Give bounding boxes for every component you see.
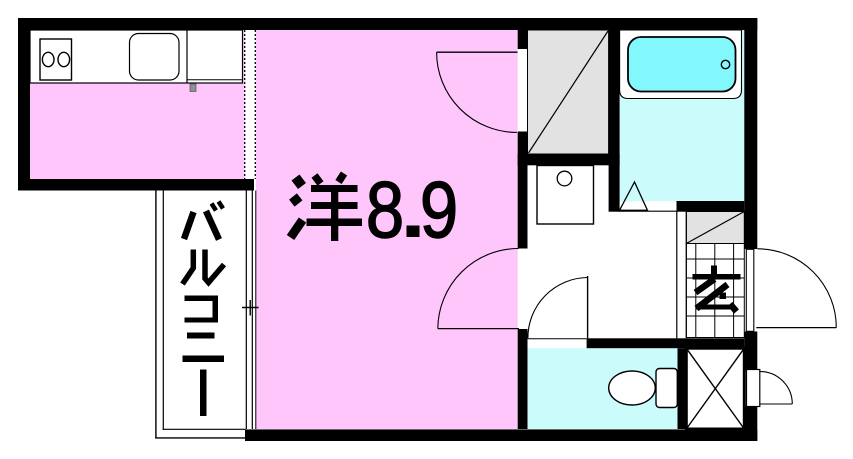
svg-text:9: 9 xyxy=(420,164,458,254)
svg-text:8: 8 xyxy=(366,164,404,254)
